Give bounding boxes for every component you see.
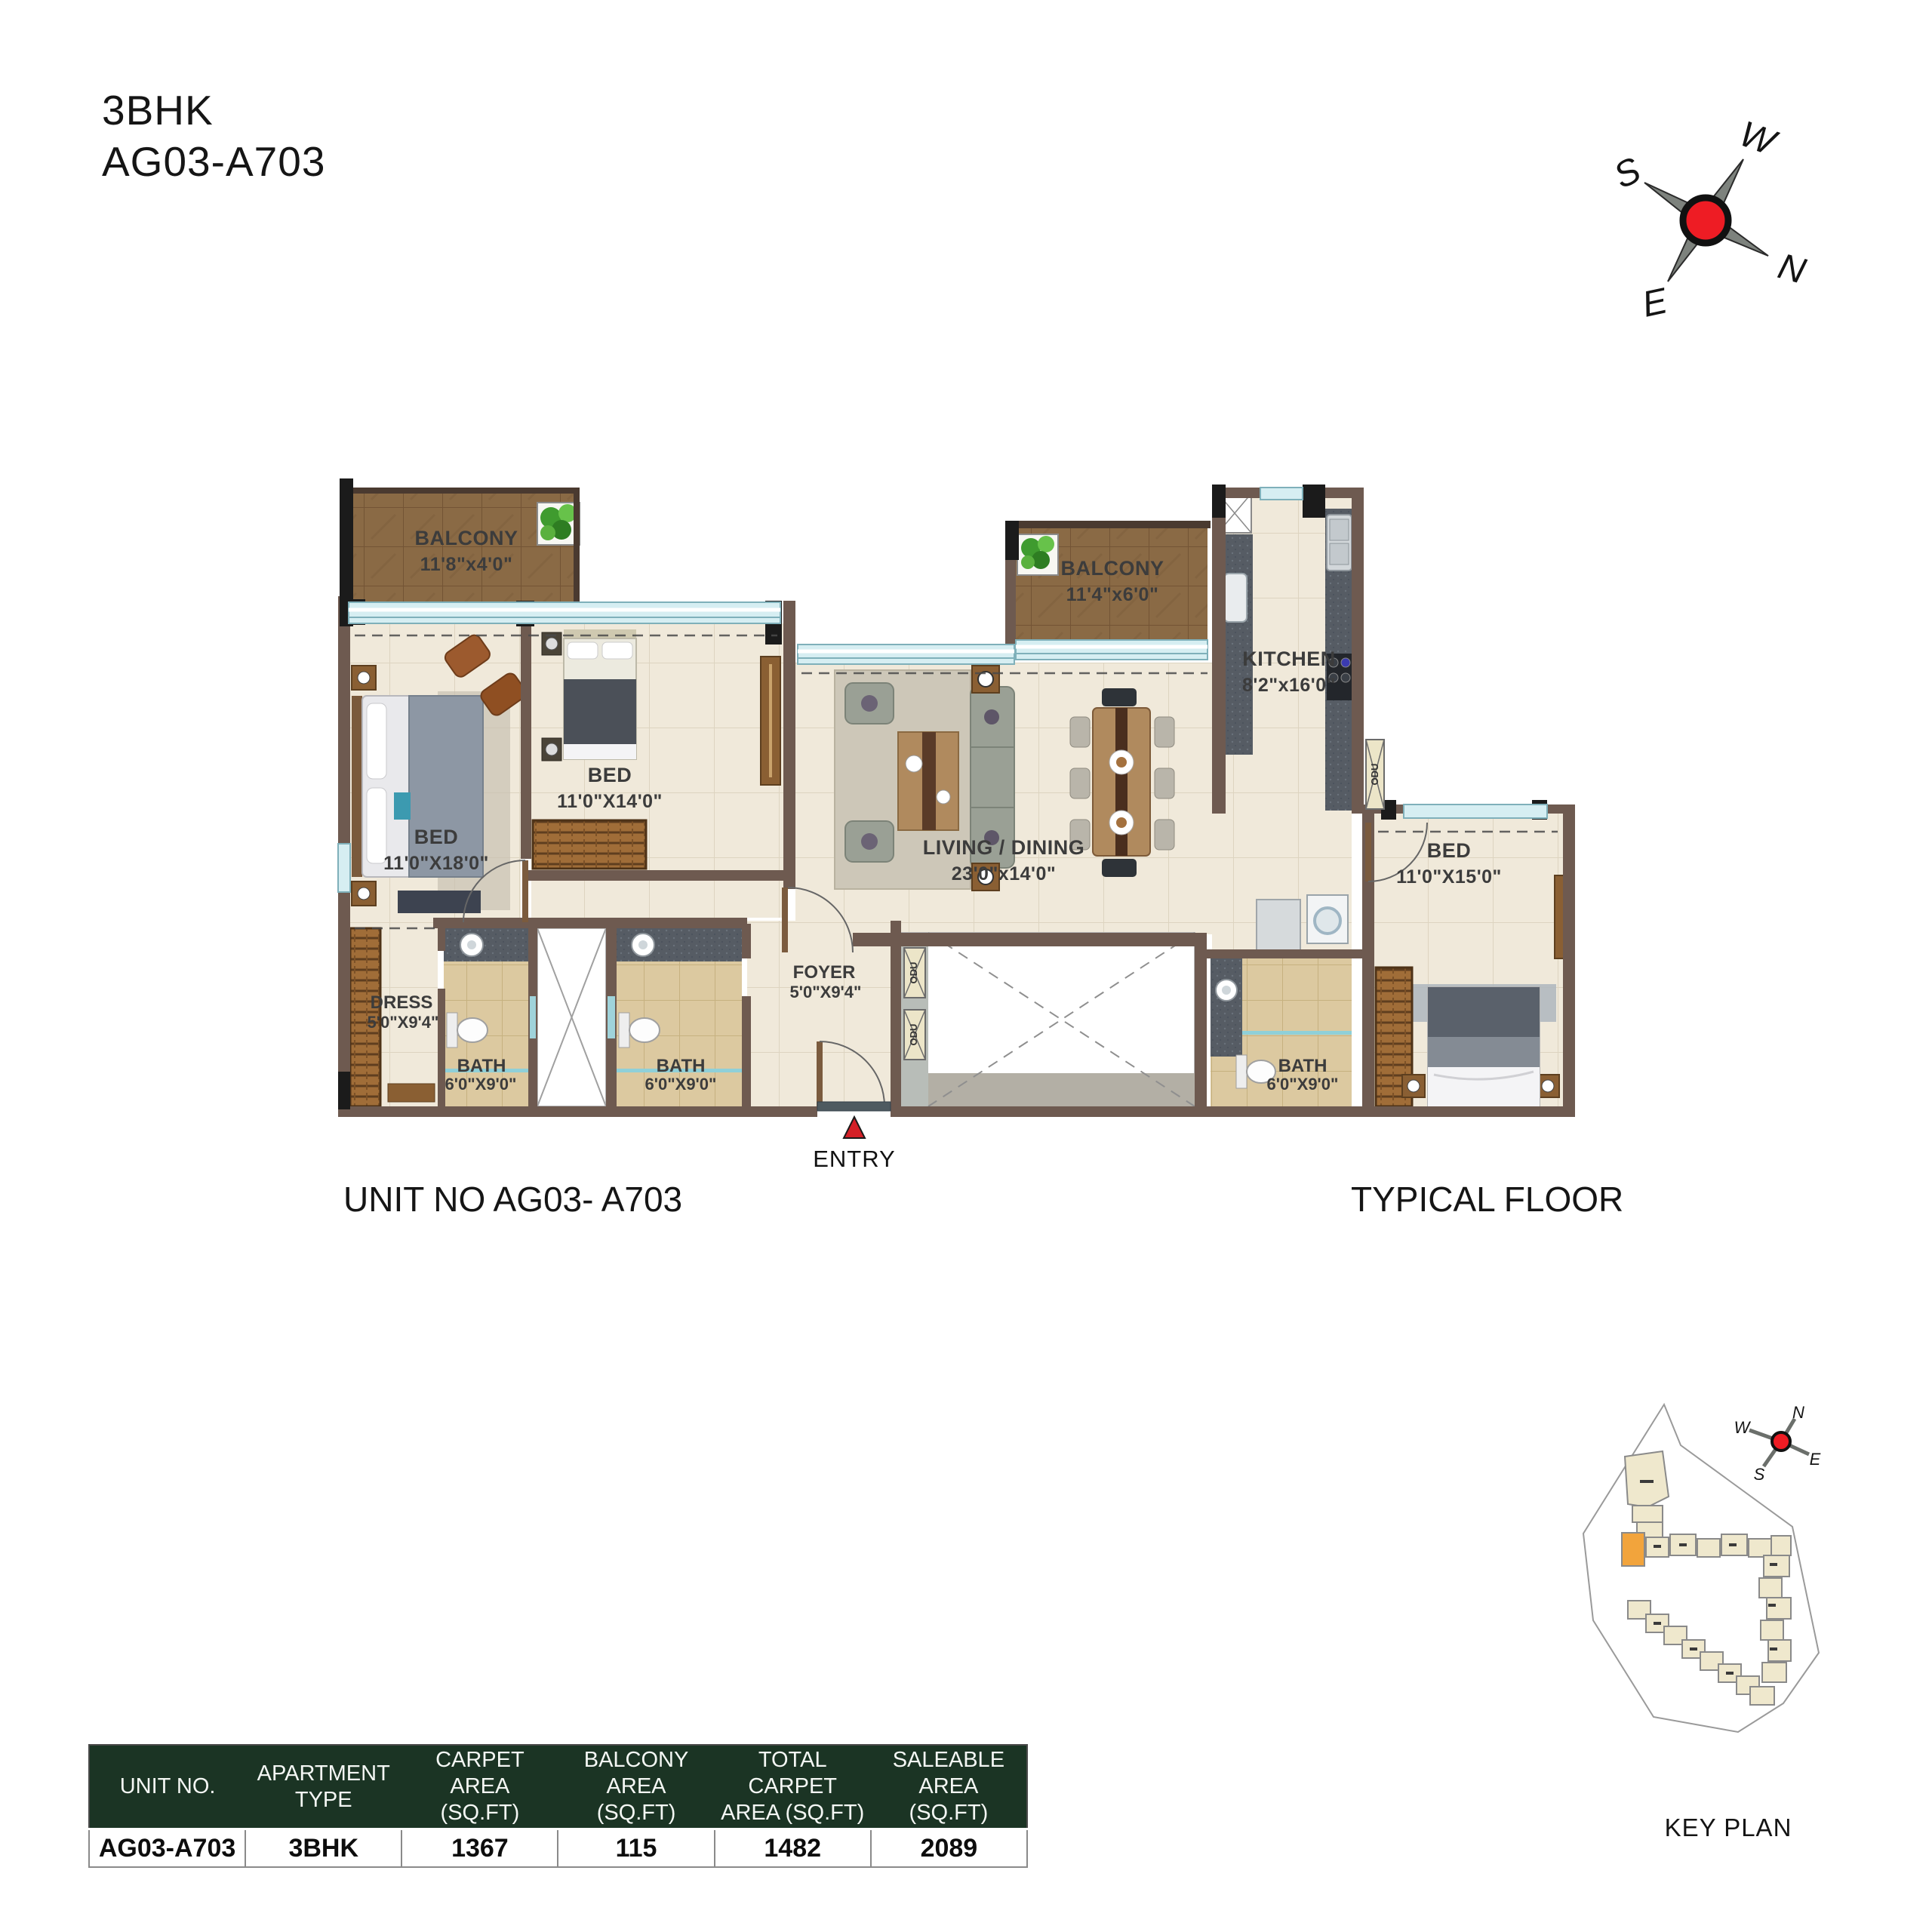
compass-e: E xyxy=(1639,281,1672,325)
window-strip xyxy=(349,602,780,623)
foyer-dims: 5'0"X9'4" xyxy=(790,983,862,1001)
cell-unit-no: AG03-A703 xyxy=(89,1829,245,1868)
bed2-dims: 11'0"X14'0" xyxy=(557,791,663,812)
kitchen-label: KITCHEN xyxy=(1242,648,1336,670)
odu-unit: ODU xyxy=(1366,740,1384,809)
area-table: UNIT NO. APARTMENT TYPE CARPET AREA (SQ.… xyxy=(88,1744,1028,1868)
col-saleable-area: SALEABLE AREA (SQ.FT) xyxy=(871,1745,1027,1829)
window-strip xyxy=(798,645,1014,664)
passage-floor xyxy=(1212,814,1226,949)
plant-icon xyxy=(1017,534,1058,575)
col-apartment-type: APARTMENT TYPE xyxy=(245,1745,401,1829)
keyplan-highlighted-unit xyxy=(1622,1533,1644,1566)
dress-dims: 5'0"X9'4" xyxy=(368,1013,439,1032)
corridor-floor xyxy=(531,881,783,918)
bath3-dims: 6'0"X9'0" xyxy=(1267,1075,1339,1094)
balcony2-dims: 11'4"x6'0" xyxy=(1066,584,1159,605)
entry-door xyxy=(817,1041,823,1106)
bed1-dims: 11'0"X18'0" xyxy=(383,853,489,874)
keyplan-compass-icon: N W E S xyxy=(1734,1403,1821,1484)
col-total-carpet-area: TOTAL CARPET AREA (SQ.FT) xyxy=(715,1745,871,1829)
balcony2-label: BALCONY xyxy=(1061,557,1164,580)
cell-total-carpet-area: 1482 xyxy=(715,1829,871,1868)
compass-n: N xyxy=(1774,246,1810,291)
window-strip xyxy=(338,844,350,892)
keyplan-compass-n: N xyxy=(1792,1403,1804,1422)
window-strip xyxy=(1404,804,1547,818)
compass-rose-icon: W N S E xyxy=(1581,94,1853,336)
plant-icon xyxy=(537,503,580,545)
page-title: 3BHK AG03-A703 xyxy=(102,85,325,187)
bed1-label: BED xyxy=(414,826,459,848)
cell-balcony-area: 115 xyxy=(558,1829,714,1868)
bed3-dims: 11'0"X15'0" xyxy=(1396,866,1502,888)
entry-label: ENTRY xyxy=(813,1146,896,1172)
window-strip xyxy=(1016,640,1207,660)
entry-marker: ENTRY xyxy=(813,1117,896,1172)
entry-threshold xyxy=(817,1102,891,1111)
key-plan: N W E S KEY PLAN xyxy=(1558,1400,1898,1875)
keyplan-caption: KEY PLAN xyxy=(1665,1814,1792,1841)
kitchen-dims: 8'2"x16'0" xyxy=(1242,675,1336,696)
lift-door xyxy=(608,996,615,1038)
odu-label: ODU xyxy=(908,1024,919,1046)
bath2-dims: 6'0"X9'0" xyxy=(645,1075,717,1094)
col-carpet-area: CARPET AREA (SQ.FT) xyxy=(401,1745,558,1829)
cell-saleable-area: 2089 xyxy=(871,1829,1027,1868)
living-label: LIVING / DINING xyxy=(923,836,1085,859)
keyplan-compass-w: W xyxy=(1734,1418,1752,1437)
table-row: AG03-A703 3BHK 1367 115 1482 2089 xyxy=(89,1829,1027,1868)
balcony1-label: BALCONY xyxy=(415,527,518,549)
col-balcony-area: BALCONY AREA (SQ.FT) xyxy=(558,1745,714,1829)
bath1-label: BATH xyxy=(457,1056,506,1076)
odu-label: ODU xyxy=(908,962,919,984)
living-dims: 23'0"x14'0" xyxy=(952,863,1056,884)
compass-center xyxy=(1683,198,1728,243)
dress-label: DRESS xyxy=(371,992,433,1013)
foyer-label: FOYER xyxy=(793,962,856,983)
bed2-label: BED xyxy=(588,764,632,786)
odu-label: ODU xyxy=(1369,764,1380,786)
floor-caption: TYPICAL FLOOR xyxy=(1351,1179,1623,1220)
title-type: 3BHK xyxy=(102,85,325,136)
odu-unit: ODU xyxy=(904,948,925,998)
area-table-header: UNIT NO. APARTMENT TYPE CARPET AREA (SQ.… xyxy=(89,1745,1027,1829)
keyplan-compass-e: E xyxy=(1810,1450,1821,1469)
title-unit: AG03-A703 xyxy=(102,136,325,187)
cell-carpet-area: 1367 xyxy=(401,1829,558,1868)
compass-s: S xyxy=(1608,150,1647,197)
unit-caption: UNIT NO AG03- A703 xyxy=(343,1179,682,1220)
bath3-label: BATH xyxy=(1278,1056,1327,1076)
keyplan-compass-s: S xyxy=(1754,1465,1765,1484)
floor-plan: ODU ODU xyxy=(325,468,1607,1177)
col-unit-no: UNIT NO. xyxy=(89,1745,245,1829)
window-strip xyxy=(1260,488,1303,500)
bath2-label: BATH xyxy=(657,1056,706,1076)
odu-unit: ODU xyxy=(904,1010,925,1060)
bath1-dims: 6'0"X9'0" xyxy=(445,1075,517,1094)
compass-w: W xyxy=(1734,114,1783,165)
bed3-label: BED xyxy=(1427,839,1472,862)
lift-door xyxy=(530,996,536,1038)
balcony1-dims: 11'8"x4'0" xyxy=(420,554,513,575)
cell-apartment-type: 3BHK xyxy=(245,1829,401,1868)
